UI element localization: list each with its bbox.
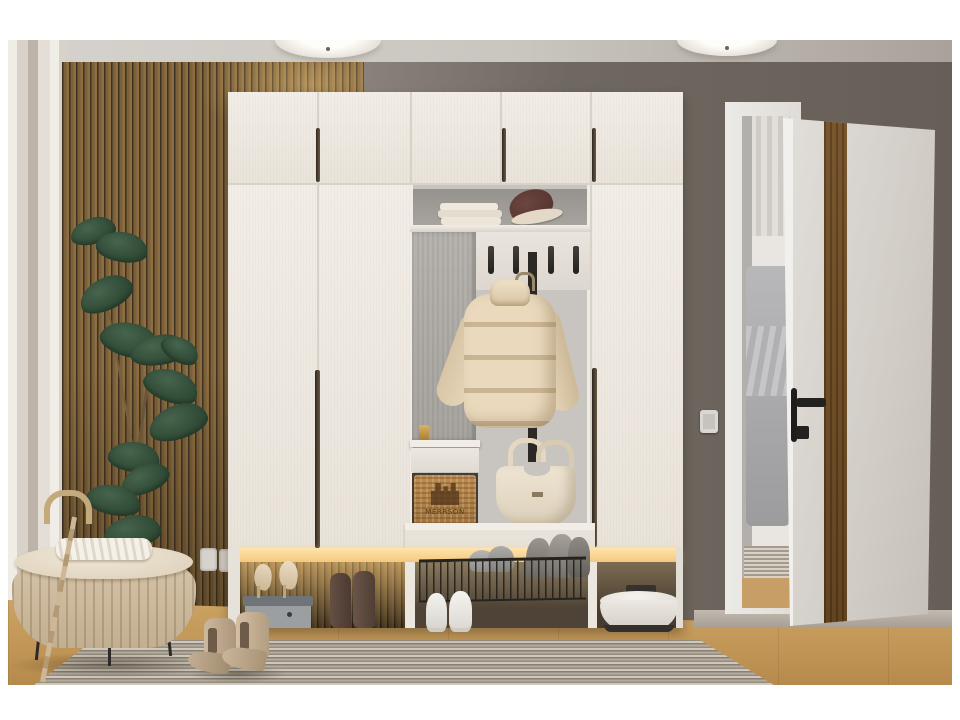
wardrobe-top-door-5 xyxy=(592,92,683,183)
socket-left xyxy=(200,548,217,571)
wicker-basket: MERRSON xyxy=(414,475,476,524)
screenshot-frame: MERRSON xyxy=(0,0,960,720)
wardrobe-tall-door-left-1 xyxy=(228,185,317,548)
heel-pump-1 xyxy=(252,564,276,598)
basket-label: MERRSON xyxy=(414,508,476,516)
vacuum-bumper xyxy=(604,625,674,632)
lamp-left-detail xyxy=(326,47,330,51)
tall-door-handle-left xyxy=(315,370,320,548)
jacket-collar xyxy=(490,280,530,306)
wardrobe-tall-door-right xyxy=(592,185,683,548)
bedroom-blanket xyxy=(746,326,790,396)
pump2-heel xyxy=(283,585,286,598)
shoebox-dot xyxy=(287,612,292,617)
wardrobe-tall-door-left-2 xyxy=(319,185,410,548)
pump1-body xyxy=(251,562,275,592)
drawer-front xyxy=(411,448,479,472)
bedroom-bed xyxy=(746,266,790,526)
bedroom-floor xyxy=(742,578,790,608)
umbrella-handle xyxy=(44,490,92,524)
shelf-towels xyxy=(438,203,504,226)
doorway-opening xyxy=(742,116,790,608)
jacket-body xyxy=(464,294,556,428)
top-door-handle-3 xyxy=(592,128,596,182)
puffer-jacket xyxy=(448,280,570,438)
suede-boot-2 xyxy=(353,571,375,628)
tote-tag xyxy=(532,492,543,497)
top-door-handle-1 xyxy=(316,128,320,182)
pump2-body xyxy=(277,560,301,591)
top-door-handle-2 xyxy=(502,128,506,182)
door-wood-stripe xyxy=(824,114,847,626)
coat-hook-2 xyxy=(513,246,519,274)
bedroom-mat xyxy=(744,546,790,582)
tote-notch xyxy=(524,462,550,476)
coat-hook-4 xyxy=(573,246,579,274)
boot2-elastic xyxy=(240,622,249,650)
umbrella xyxy=(26,488,86,684)
pump1-heel xyxy=(257,586,260,598)
towel-3 xyxy=(441,217,501,225)
boot1-elastic xyxy=(208,628,217,654)
umbrella-shaft xyxy=(40,517,77,683)
coat-hook-3 xyxy=(548,246,554,274)
suede-boot-1 xyxy=(330,573,351,628)
interior-photo: MERRSON xyxy=(8,40,952,685)
tall-door-handle-right xyxy=(592,368,597,547)
perfume-bottle xyxy=(419,425,429,440)
niche-shelf-board xyxy=(410,225,590,232)
tote-bag xyxy=(496,438,576,526)
bench-leg-left xyxy=(405,562,415,628)
light-switch xyxy=(700,410,718,433)
sneaker-2 xyxy=(449,591,472,632)
basket-emblem xyxy=(431,483,459,505)
light-switch-rocker xyxy=(703,414,715,429)
heel-pump-2 xyxy=(276,561,302,598)
wardrobe-top-door-4 xyxy=(502,92,590,183)
wire-shoe-rack xyxy=(419,557,586,603)
drawer-top-board xyxy=(410,440,480,447)
open-door xyxy=(778,114,935,626)
wardrobe-top-door-3 xyxy=(412,92,500,183)
lamp-right-detail xyxy=(725,46,729,50)
sneaker-1 xyxy=(426,593,447,632)
wardrobe-top-door-1 xyxy=(228,92,317,183)
coat-hook-1 xyxy=(488,246,494,274)
door-lever-handle xyxy=(796,398,826,407)
wardrobe-top-door-2 xyxy=(319,92,410,183)
robot-vacuum xyxy=(600,585,678,636)
door-lock xyxy=(796,426,809,439)
